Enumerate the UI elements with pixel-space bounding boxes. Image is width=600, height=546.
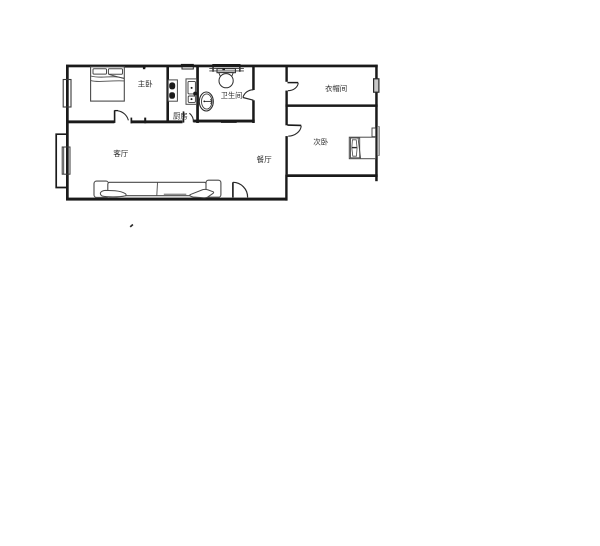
- svg-text:厨房: 厨房: [173, 112, 188, 121]
- svg-text:卫生间: 卫生间: [221, 91, 243, 100]
- svg-text:餐厅: 餐厅: [257, 155, 273, 164]
- svg-text:客厅: 客厅: [113, 148, 129, 158]
- svg-text:衣帽间: 衣帽间: [325, 84, 347, 93]
- svg-text:次卧: 次卧: [313, 137, 329, 147]
- svg-text:主卧: 主卧: [138, 78, 154, 88]
